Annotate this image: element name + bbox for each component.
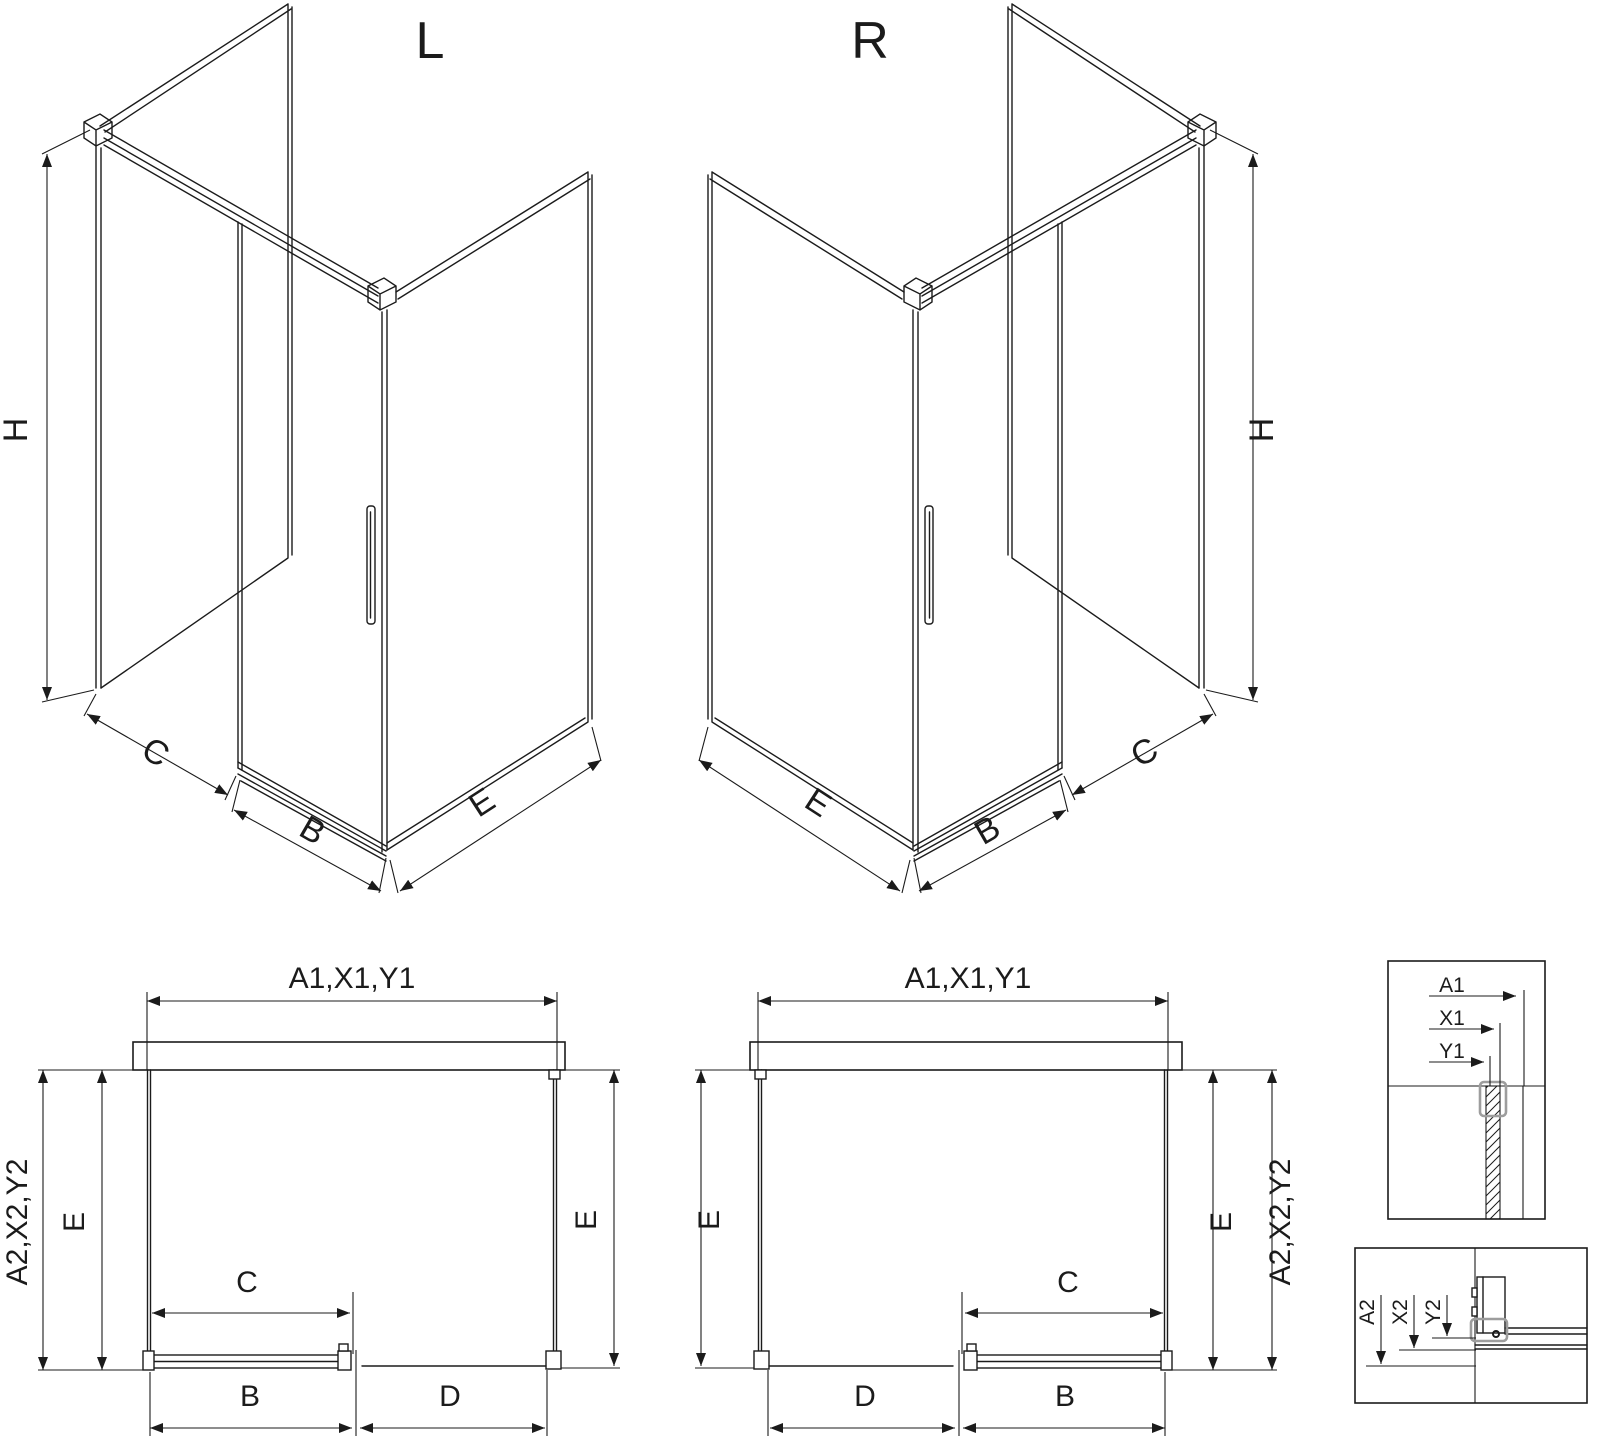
plan-right-wall-dim-label: A1,X1,Y1	[905, 962, 1032, 995]
plan-left-side-right-label: E	[570, 1210, 603, 1230]
plan-left-overall-dim-label: A2,X2,Y2	[1, 1159, 34, 1286]
detail-glass-panel-hatched	[1486, 1086, 1500, 1219]
drawing-canvas: L H C B E R H C B E A1,X1,Y1 A2,X2,Y2 E …	[0, 0, 1600, 1438]
plan-left-opening-label: D	[439, 1380, 461, 1413]
detail-profile-tab-upper	[1472, 1288, 1477, 1297]
iso-left-title: L	[416, 12, 445, 70]
plan-right-side-left-label: E	[693, 1210, 726, 1230]
detail-y1-label: Y1	[1439, 1040, 1465, 1063]
detail-a2-label: A2	[1356, 1299, 1379, 1325]
plan-left-door-label: B	[240, 1380, 260, 1413]
detail-profile-tab-lower	[1472, 1307, 1477, 1316]
iso-right-title: R	[851, 12, 889, 70]
detail-y2-label: Y2	[1422, 1299, 1445, 1325]
detail-a1-label: A1	[1439, 974, 1465, 997]
detail-x2-label: X2	[1389, 1299, 1412, 1325]
iso-right-height-label: H	[1243, 418, 1281, 443]
plan-right-opening-label: D	[854, 1380, 876, 1413]
plan-left-side-left-label: E	[58, 1212, 91, 1232]
iso-left-height-label: H	[0, 418, 35, 443]
detail-door-profile	[1477, 1277, 1505, 1333]
plan-right-fixed-label: C	[1057, 1266, 1079, 1299]
plan-right-door-label: B	[1055, 1380, 1075, 1413]
plan-left-fixed-label: C	[236, 1266, 258, 1299]
detail-x1-label: X1	[1439, 1007, 1465, 1030]
shower-enclosure-technical-drawing: L H C B E R H C B E A1,X1,Y1 A2,X2,Y2 E …	[0, 0, 1600, 1438]
plan-left-wall-dim-label: A1,X1,Y1	[289, 962, 416, 995]
plan-right-overall-dim-label: A2,X2,Y2	[1264, 1159, 1297, 1286]
plan-right-side-right-label: E	[1205, 1212, 1238, 1232]
